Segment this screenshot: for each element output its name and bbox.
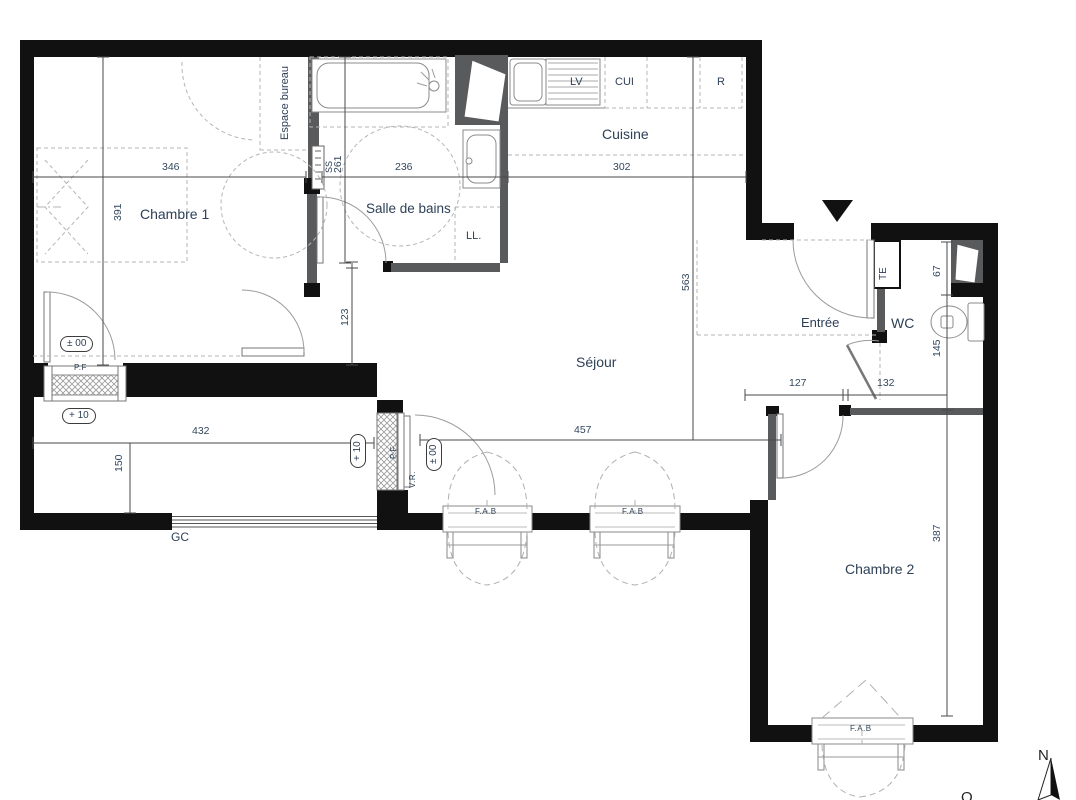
- dim-sdb-height: 261: [333, 155, 344, 173]
- level-badge-balcon-1: + 10: [62, 408, 96, 424]
- opening-label-vr: V.R.: [409, 471, 417, 488]
- opening-label-fab-2: F.A.B: [622, 508, 644, 516]
- dim-entree-seg1: 127: [789, 378, 807, 389]
- room-label-salle-de-bains: Salle de bains: [366, 202, 451, 216]
- equipment-label-electrical-panel: TE: [879, 267, 889, 280]
- door-swings: [44, 197, 879, 495]
- opening-label-fab-3: F.A.B: [850, 725, 872, 733]
- electrical-panel: [874, 241, 900, 288]
- dim-cuisine-width: 302: [613, 162, 631, 173]
- equipment-label-fridge: R: [717, 77, 725, 88]
- equipment-label-guardrail: GC: [171, 531, 189, 543]
- toilet: [931, 303, 984, 341]
- level-badge-chambre1-pf: ± 00: [60, 336, 93, 352]
- compass-west-label: O: [961, 790, 973, 800]
- zone-label-espace-bureau: Espace bureau: [280, 66, 291, 140]
- equipment-label-washing-machine: LL.: [466, 231, 481, 242]
- exterior-walls: [20, 40, 998, 742]
- room-label-chambre2: Chambre 2: [845, 562, 914, 576]
- level-badge-balcon-2: + 10: [350, 434, 366, 468]
- room-label-cuisine: Cuisine: [602, 127, 649, 141]
- dim-sejour-width: 457: [574, 425, 592, 436]
- dim-degagement: 123: [340, 308, 351, 326]
- opening-label-fab-1: F.A.B: [475, 508, 497, 516]
- bathtub: [312, 59, 446, 112]
- room-label-entree: Entrée: [801, 316, 839, 329]
- dim-sejour-depth: 563: [681, 273, 692, 291]
- equipment-label-cooker: CUI: [615, 77, 634, 88]
- balcony-railing: [172, 517, 377, 528]
- dim-chambre2-depth: 387: [932, 524, 943, 542]
- compass-needle: [1038, 758, 1060, 800]
- dim-entree-seg2: 132: [877, 378, 895, 389]
- compass-north-label: N: [1038, 748, 1049, 763]
- dim-wc-seg: 67: [932, 265, 943, 277]
- window-swing-dashes: [448, 452, 905, 797]
- plan-drawing: [0, 0, 1076, 800]
- washbasin: [463, 130, 500, 188]
- level-badge-sejour-pf: ± 00: [426, 438, 442, 471]
- room-label-sejour: Séjour: [576, 355, 616, 369]
- entrance-arrow: [822, 200, 853, 222]
- floor-plan: Chambre 1 Salle de bains Cuisine Séjour …: [0, 0, 1076, 800]
- dim-chambre1-width: 346: [162, 162, 180, 173]
- dim-sdb-width: 236: [395, 162, 413, 173]
- dim-chambre1-depth: 391: [113, 203, 124, 221]
- opening-label-pf-chambre1: P.F: [74, 364, 87, 372]
- room-label-chambre1: Chambre 1: [140, 207, 209, 221]
- dim-balcon-depth: 150: [114, 454, 125, 472]
- room-label-wc: WC: [891, 316, 914, 330]
- dim-balcon-width: 432: [192, 426, 210, 437]
- opening-label-pf-sejour: P.F.: [390, 444, 398, 459]
- equipment-label-dishwasher: LV: [570, 77, 583, 88]
- dim-wc-depth: 145: [932, 339, 943, 357]
